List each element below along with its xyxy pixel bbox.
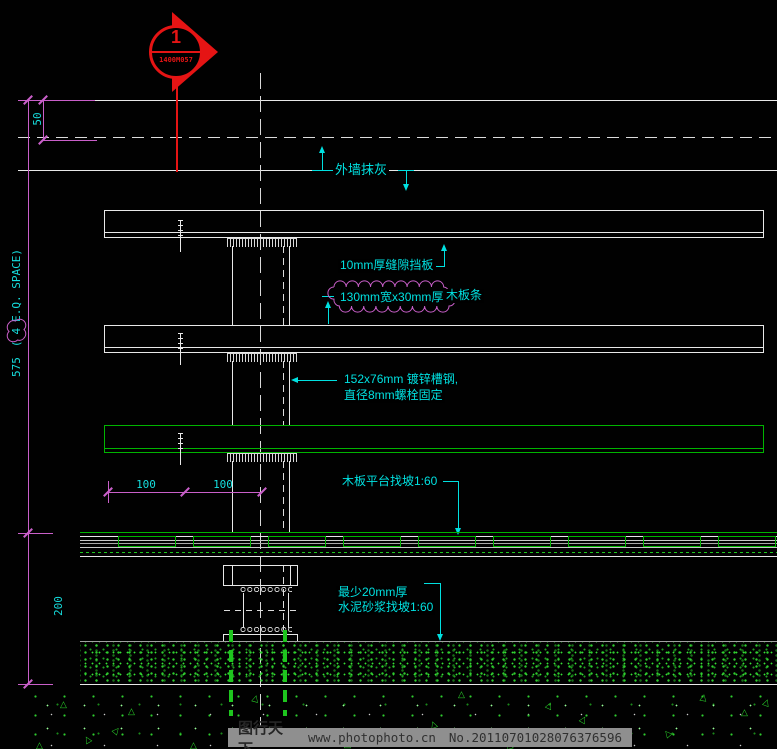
dim-200-line [28,533,29,684]
dim-200-text: 200 [52,589,64,623]
ground-hatch-dense [80,642,777,684]
ground-triangle-icon: △ [111,725,122,736]
leader-line [458,481,459,529]
footing-inner-line [232,565,233,586]
rail3-bearing-plate [227,453,297,462]
ground-triangle-icon: △ [60,700,67,709]
rail3-top-line [104,425,764,426]
dim-100-right-text: 100 [200,478,246,491]
dim-eq-open: ( [10,341,23,348]
leader-line [444,249,445,267]
post-left-edge [232,461,233,532]
rail2-inner-line [104,347,764,348]
ground-triangle-icon: △ [762,697,772,708]
dim-575-line [28,100,29,533]
rail2-bearing-plate [227,353,297,362]
note-plank-name: 木板条 [444,289,484,303]
deck-grain-line [80,547,777,548]
deck-plank-joint [343,536,401,547]
leader-arrow-icon [437,634,443,641]
rail2-top-line [104,325,764,326]
ground-triangle-icon: △ [741,708,748,717]
ground-triangle-icon: △ [662,728,673,739]
revision-cloud: 4 [9,322,24,341]
leader-arrow-icon [403,184,409,191]
rail1-right-cap [763,210,764,238]
rail3-inner-line [104,448,764,449]
footing-weld-hatch [240,586,292,593]
dim-50-text: 50 [31,110,43,128]
rail1-bottom-line [104,237,764,238]
deck-plank-joint [493,536,551,547]
leader-arrow-icon [441,244,447,251]
ground-triangle-icon: △ [190,741,197,749]
post-left-edge [232,246,233,325]
ground-triangle-icon: △ [128,707,135,716]
leader-arrow-icon [325,301,331,308]
buried-hidden-line [224,610,300,611]
footing-bracket [223,565,298,586]
anchor-rod [229,630,233,716]
deck-plank-joint [418,536,476,547]
rail3-right-cap [763,425,764,453]
note-mortar-line2: 水泥砂浆找坡1:60 [336,601,435,615]
dim-eq-rest: E.Q. SPACE) [10,249,23,322]
leader-line [322,296,334,297]
rail2-bottom-line [104,352,764,353]
leader-line [322,152,323,170]
note-platform-slope: 木板平台找坡1:60 [340,475,439,489]
deck-plank-joint [643,536,701,547]
wall-top-line [95,100,777,101]
leader-line [297,380,337,381]
watermark-site: www.photophoto.cn [308,730,436,745]
deck-plank-joint [193,536,251,547]
note-plank-size-cloud: 130mm宽x30mm厚 [334,287,449,306]
rail1-inner-line [104,232,764,233]
post-hidden-edge [283,461,284,532]
watermark-brand: 图行天下 [238,717,295,749]
deck-plank-joint [568,536,626,547]
rail1-bearing-plate [227,238,297,247]
post-hidden-edge [283,361,284,425]
revision-cloud: 130mm宽x30mm厚 [334,287,449,306]
leader-arrow-icon [291,377,298,383]
callout-divider [150,51,202,53]
deck-plank-joint [118,536,176,547]
note-gap-board: 10mm厚缝隙挡板 [338,259,435,273]
callout-number: 1 [149,27,203,48]
leader-line [443,481,458,482]
leader-line [406,170,407,185]
post-right-edge [289,361,290,425]
rail1-bolt-icon [176,220,185,252]
rail3-left-cap [104,425,105,453]
wall-hidden-line [18,137,777,138]
dim-extension-line [18,533,53,534]
ground-triangle-icon: △ [699,692,707,702]
note-mortar-line1: 最少20mm厚 [336,586,409,600]
callout-leader-line [176,79,178,172]
dim-575-value: 575 [10,357,23,377]
ground-triangle-icon: △ [251,693,260,703]
ground-triangle-icon: △ [36,741,43,749]
dim-extension-line [18,100,98,101]
post-left-edge [232,361,233,425]
note-channel-line2: 直径8mm螺栓固定 [342,389,445,403]
rail3-bolt-icon [176,433,185,465]
rail3-bottom-line [104,452,764,453]
rail2-left-cap [104,325,105,353]
note-plank-size: 130mm宽x30mm厚 [340,290,443,304]
dim-575-text: 575 ( 4 E.Q. SPACE) [9,248,23,378]
leader-line [440,583,441,635]
dim-extension-line [43,140,97,141]
deck-top-line [80,532,777,533]
dim-100-left-text: 100 [123,478,169,491]
ground-triangle-icon: △ [544,700,554,711]
deck-bottom-line [80,556,777,557]
leader-line [436,266,444,267]
leader-line [424,583,440,584]
watermark-bar: 图行天下 www.photophoto.cn No.20110701028076… [228,728,632,747]
ground-triangle-icon: △ [82,734,92,745]
leader-arrow-icon [319,146,325,153]
rail1-top-line [104,210,764,211]
footing-inner-line [290,565,291,586]
ground-triangle-icon: △ [578,714,588,725]
post-right-edge [289,461,290,532]
rail2-right-cap [763,325,764,353]
watermark-serial: No.20110701028076376596 [449,730,622,745]
leader-line [312,170,334,171]
note-channel-line1: 152x76mm 镀锌槽钢, [342,373,460,387]
anchor-rod [283,630,287,716]
deck-green-stipple-line [80,552,777,553]
leader-line [328,307,329,324]
callout-code: 1400M057 [149,56,203,64]
cad-drawing-canvas: 1 1400M057 50 575 ( [0,0,777,749]
dim-eq-num: 4 [10,328,23,335]
note-wall-finish: 外墙抹灰 [333,163,389,178]
deck-plank-joint [268,536,326,547]
deck-plank-joint [718,536,776,547]
rail2-bolt-icon [176,333,185,365]
rail1-left-cap [104,210,105,238]
ground-triangle-icon: △ [458,690,465,699]
post-hidden-edge [283,246,284,325]
post-right-edge [289,246,290,325]
